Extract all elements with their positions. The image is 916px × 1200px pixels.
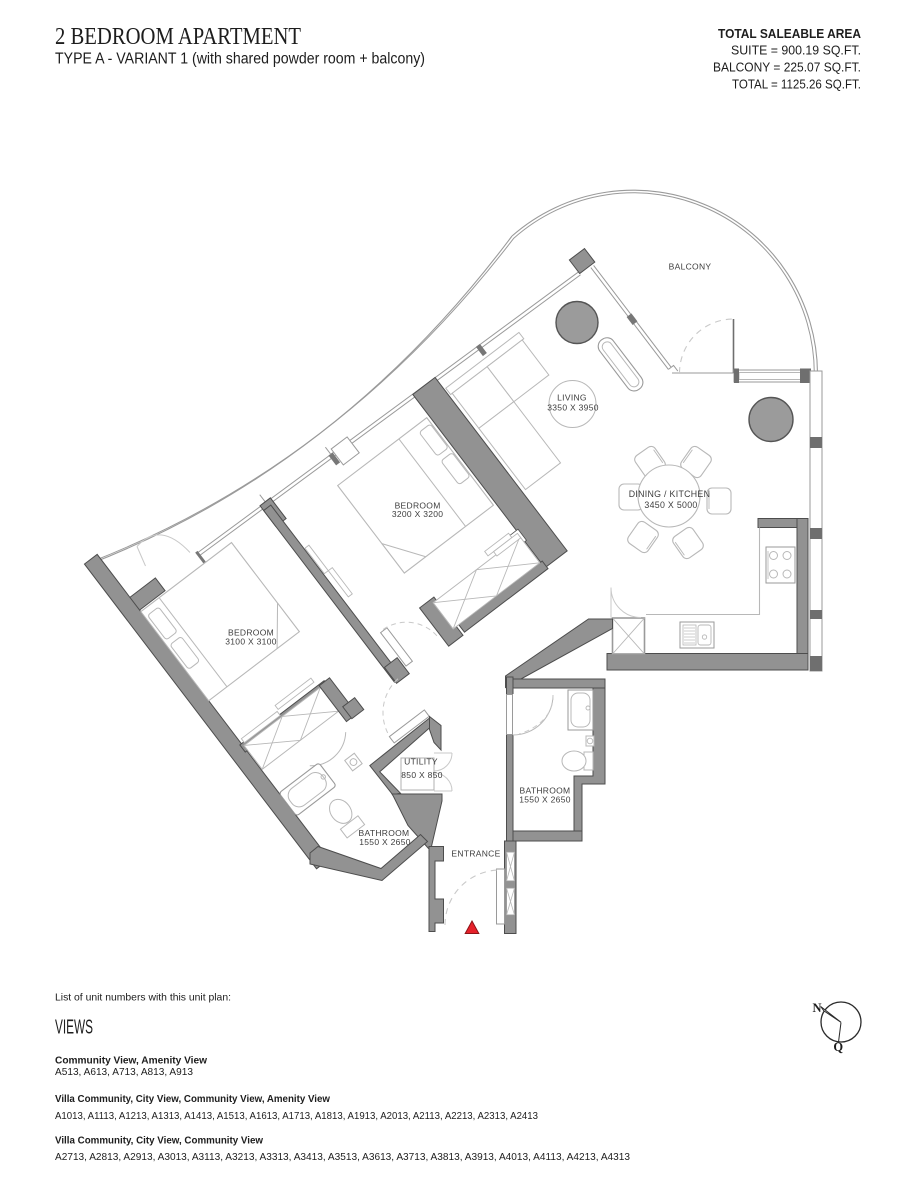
svg-text:BALCONY = 225.07 SQ.FT.: BALCONY = 225.07 SQ.FT. [713, 60, 861, 75]
svg-text:N: N [812, 1001, 821, 1015]
svg-text:1550 X 2650: 1550 X 2650 [519, 794, 571, 804]
svg-text:Villa Community, City View, Co: Villa Community, City View, Community Vi… [55, 1136, 264, 1147]
svg-text:3450 X 5000: 3450 X 5000 [644, 500, 697, 510]
svg-text:A2713, A2813, A2913, A3013, A3: A2713, A2813, A2913, A3013, A3113, A3213… [55, 1152, 630, 1163]
svg-text:TOTAL = 1125.26 SQ.FT.: TOTAL = 1125.26 SQ.FT. [732, 77, 861, 92]
svg-text:850 X 850: 850 X 850 [401, 770, 442, 780]
svg-text:Community View, Amenity View: Community View, Amenity View [55, 1055, 208, 1066]
svg-text:BALCONY: BALCONY [669, 262, 712, 272]
svg-text:TOTAL SALEABLE AREA: TOTAL SALEABLE AREA [718, 26, 862, 41]
svg-text:2 BEDROOM APARTMENT: 2 BEDROOM APARTMENT [55, 24, 301, 50]
svg-text:SUITE = 900.19 SQ.FT.: SUITE = 900.19 SQ.FT. [731, 43, 861, 58]
svg-text:LIVING: LIVING [557, 393, 587, 403]
svg-text:3350 X 3950: 3350 X 3950 [547, 403, 599, 413]
svg-text:VIEWS: VIEWS [55, 1017, 93, 1039]
svg-text:3100 X 3100: 3100 X 3100 [225, 636, 277, 646]
svg-text:UTILITY: UTILITY [404, 757, 438, 767]
svg-text:DINING / KITCHEN: DINING / KITCHEN [629, 489, 711, 499]
svg-text:Q: Q [833, 1040, 843, 1054]
svg-text:3200 X 3200: 3200 X 3200 [392, 509, 444, 519]
svg-text:A1013, A1113, A1213, A1313, A1: A1013, A1113, A1213, A1313, A1413, A1513… [55, 1111, 538, 1122]
svg-text:Villa Community, City View, Co: Villa Community, City View, Community Vi… [55, 1094, 331, 1105]
svg-text:A513, A613, A713, A813, A913: A513, A613, A713, A813, A913 [55, 1067, 193, 1078]
svg-text:List of unit numbers with this: List of unit numbers with this unit plan… [55, 992, 231, 1004]
svg-text:TYPE A - VARIANT 1 (with share: TYPE A - VARIANT 1 (with shared powder r… [55, 51, 425, 68]
svg-text:1550 X 2650: 1550 X 2650 [359, 837, 411, 847]
svg-text:ENTRANCE: ENTRANCE [451, 849, 500, 859]
